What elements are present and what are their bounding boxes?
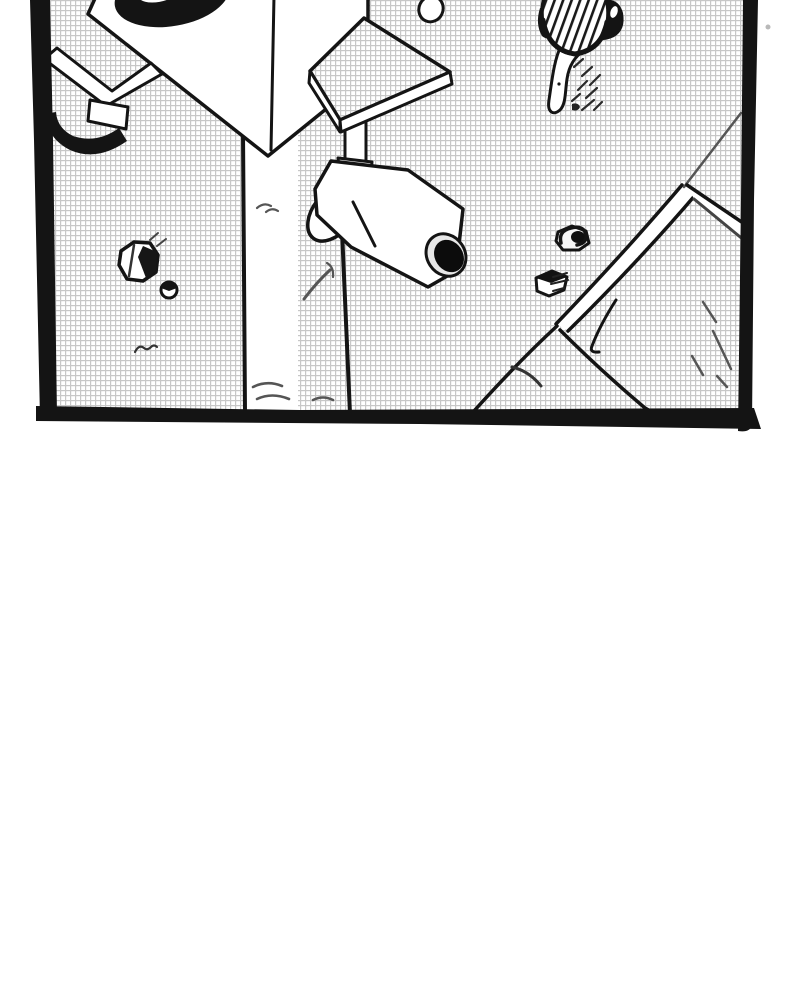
dust-speck (766, 25, 771, 30)
body-dot (557, 82, 560, 85)
stone-dark (556, 226, 589, 250)
comic-panel-art (0, 0, 800, 1000)
pebble (161, 282, 177, 298)
comic-page (0, 0, 800, 1000)
pole-left-edge (243, 132, 245, 414)
